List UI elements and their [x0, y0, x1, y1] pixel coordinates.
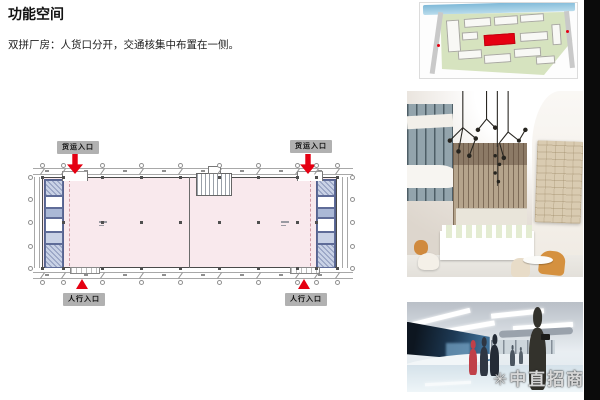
grid-bubble [28, 244, 33, 249]
grid-bubble [350, 197, 355, 202]
column [140, 176, 143, 179]
freight-entrance-label-left: 货运入口 [57, 141, 99, 154]
page-title: 功能空间 [8, 4, 64, 24]
site-building [520, 31, 549, 42]
column [41, 176, 44, 179]
column [218, 176, 221, 179]
grid-bubble [61, 163, 66, 168]
grid-bubble [40, 163, 45, 168]
dimension-line [342, 177, 343, 268]
area-label [281, 221, 289, 228]
site-building [536, 55, 555, 65]
pedestrian-porch-left [70, 267, 100, 274]
person [480, 347, 488, 376]
zone-dashed-line [69, 179, 70, 266]
page-subtitle: 双拼厂房：人货口分开，交通核集中布置在一侧。 [8, 37, 239, 52]
core-room [45, 180, 63, 196]
column [62, 176, 65, 179]
highlighted-building [484, 33, 516, 46]
column [101, 267, 104, 270]
site-plan-image [419, 2, 578, 79]
column [101, 176, 104, 179]
grid-bubble [295, 163, 300, 168]
pedestrian-arrow-right-icon [298, 279, 310, 289]
column [140, 221, 143, 224]
grid-bubble [28, 197, 33, 202]
core-room [317, 208, 335, 218]
column [257, 221, 260, 224]
stair-core-left [44, 179, 64, 267]
core-room [45, 244, 63, 268]
grid-bubble [350, 175, 355, 180]
grid-bubble [40, 280, 45, 285]
gate-marker [566, 30, 569, 33]
column [140, 267, 143, 270]
column [296, 176, 299, 179]
grid-bubble [28, 266, 33, 271]
column [62, 267, 65, 270]
grid-bubble [217, 280, 222, 285]
party-wall [189, 177, 190, 268]
core-room [317, 232, 335, 244]
dimension-line [34, 177, 35, 268]
grid-bubble [350, 244, 355, 249]
watermark-logo-icon: ✳ [493, 370, 509, 389]
column [179, 221, 182, 224]
watermark: ✳中直招商网 [493, 365, 583, 390]
zone-dashed-line [310, 179, 311, 266]
round-table [523, 256, 553, 264]
site-building [484, 53, 511, 64]
slide: 功能空间 双拼厂房：人货口分开，交通核集中布置在一侧。 货运入口 货运入口 [0, 0, 600, 400]
watermark-text: 中直招商网 [509, 370, 583, 389]
site-building [493, 15, 517, 26]
column [218, 221, 221, 224]
dimension-line [39, 177, 40, 268]
grid-bubble [335, 280, 340, 285]
scale-model [442, 225, 532, 238]
column [336, 176, 339, 179]
core-room [45, 196, 63, 208]
grid-bubble [295, 280, 300, 285]
column [315, 221, 318, 224]
column [218, 267, 221, 270]
grid-bubble [256, 280, 261, 285]
site-building [462, 31, 478, 40]
core-room [317, 196, 335, 208]
grid-bubble [256, 163, 261, 168]
right-edge-band [584, 0, 600, 400]
core-room [45, 218, 63, 232]
column [257, 176, 260, 179]
core-room [317, 244, 335, 268]
floor-plan: 货运入口 货运入口 人行入口 人行入口 [25, 133, 367, 315]
column [296, 267, 299, 270]
grid-bubble [139, 163, 144, 168]
grid-bubble [350, 266, 355, 271]
column [315, 176, 318, 179]
grid-bubble [28, 175, 33, 180]
core-room [45, 232, 63, 244]
core-room [317, 180, 335, 196]
dimension-line [347, 177, 348, 268]
central-staircase [196, 173, 232, 196]
pedestrian-entrance-label-right: 人行入口 [285, 293, 327, 306]
site-building [446, 19, 461, 51]
site-building [551, 24, 562, 46]
column [62, 221, 65, 224]
grid-bubble [350, 220, 355, 225]
grid-bubble [178, 163, 183, 168]
column [315, 267, 318, 270]
person-red-coat [469, 349, 477, 375]
grid-bubble [217, 163, 222, 168]
column [179, 267, 182, 270]
pedestrian-arrow-left-icon [76, 279, 88, 289]
column [101, 221, 104, 224]
camera-icon [541, 334, 550, 340]
grid-bubble [139, 280, 144, 285]
core-room [45, 208, 63, 218]
site-building [464, 17, 491, 28]
map-mural [534, 140, 583, 223]
branch-chandelier [432, 91, 541, 199]
column [257, 267, 260, 270]
gate-marker [437, 44, 440, 47]
lobby-photo [407, 91, 583, 277]
grid-bubble [178, 280, 183, 285]
stair-core-right [316, 179, 336, 267]
column [41, 267, 44, 270]
person-distant [510, 350, 515, 366]
column [179, 176, 182, 179]
site-building [457, 49, 481, 60]
pedestrian-entrance-label-left: 人行入口 [63, 293, 105, 306]
core-room [317, 218, 335, 232]
freight-door-right [297, 171, 323, 181]
grid-bubble [100, 163, 105, 168]
grid-bubble [314, 163, 319, 168]
freight-entrance-label-right: 货运入口 [290, 140, 332, 153]
column [336, 267, 339, 270]
column [296, 221, 299, 224]
grid-bubble [100, 280, 105, 285]
exhibition-photo: ✳中直招商网 [407, 302, 583, 392]
grid-bubble [335, 163, 340, 168]
grid-bubble [61, 280, 66, 285]
person-distant [519, 351, 523, 364]
grid-bubble [28, 220, 33, 225]
grid-bubble [314, 280, 319, 285]
white-armchair [418, 253, 439, 270]
